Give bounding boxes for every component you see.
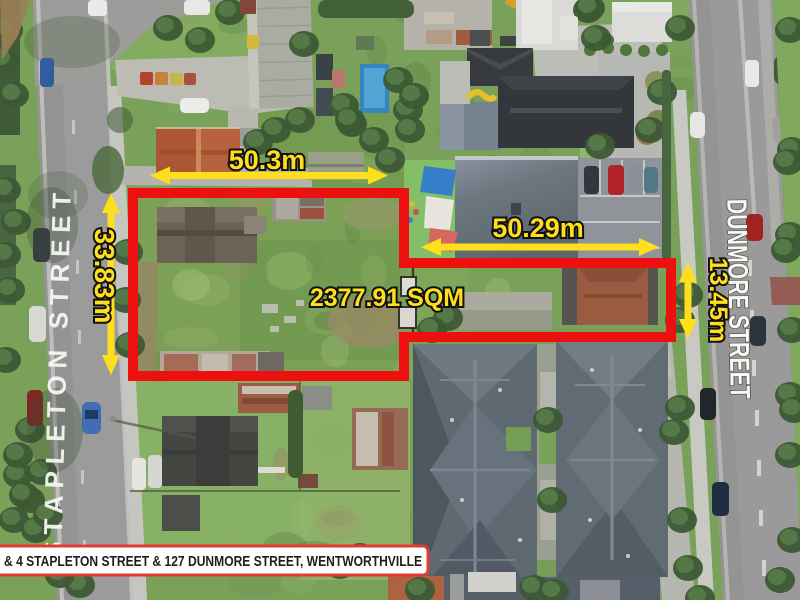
svg-text:50.3m: 50.3m [229,145,306,175]
svg-text:DUNMORE STREET: DUNMORE STREET [721,199,755,400]
svg-text:33.83m: 33.83m [89,229,120,324]
svg-text:2377.91 SQM: 2377.91 SQM [310,284,464,312]
svg-text:50.29m: 50.29m [492,213,584,243]
svg-text:& 4 STAPLETON STREET & 127 DUN: & 4 STAPLETON STREET & 127 DUNMORE STREE… [4,553,422,570]
